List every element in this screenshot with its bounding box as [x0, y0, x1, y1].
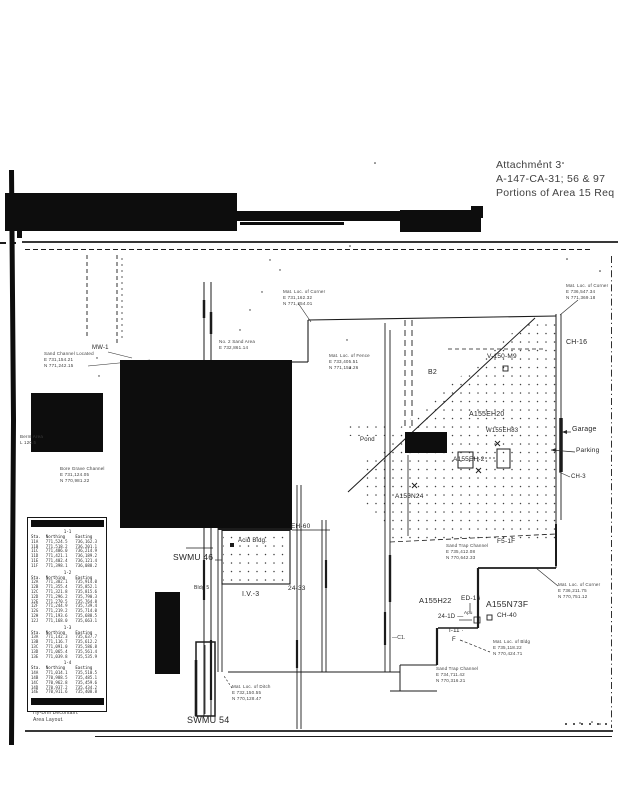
label-a155h22: A155H22 [419, 596, 452, 605]
note-sand-channel: Sand Channel LocatedE 731,154.21N 771,24… [44, 351, 94, 369]
attachment-subject: Portions of Area 15 Req [496, 186, 614, 200]
redaction-top-right [400, 210, 481, 232]
note-ditch: Mat. Loc. of DitchE 732,150.55N 770,128.… [232, 684, 271, 702]
label-eh60: EH-60 [291, 523, 310, 530]
label-w155eh83: W155EH83 [486, 428, 518, 434]
label-a155eh2: A155EH-2 [453, 456, 485, 463]
note-mid-fence: Mat. Loc. of FenceE 733,405.51N 771,153.… [329, 353, 370, 371]
label-ch3: CH-3 [571, 474, 586, 480]
label-apu: Apu [464, 610, 473, 615]
label-acid-bldg: Acid Bldg. [238, 538, 267, 544]
note-right-corner: Mat. Loc. of CornerE 736,211.75N 770,751… [558, 582, 600, 600]
note-bldg-corner: Mat. Loc. of BldgE 735,118.22N 770,424.7… [493, 639, 530, 657]
table-rows: 11A771,524.5736,162.311B771,518.2736,201… [31, 540, 104, 569]
note-sand-trap-top: Sand Trap ChannelE 735,412.08N 770,642.3… [446, 543, 488, 561]
table-section-1: 1-1 Sta.NorthingEasting 11A771,524.5736,… [31, 529, 104, 569]
label-24-33: 24-33 [288, 585, 306, 592]
scanned-site-plan-page: Attachment 3 A-147-CA-31; 56 & 97 Portio… [0, 0, 618, 800]
attachment-title: Attachment 3 [496, 158, 614, 172]
redaction-left-streak [9, 170, 16, 745]
label-swmu46: SWMU 46 [173, 552, 213, 562]
redaction-top-left [5, 193, 237, 231]
redaction-narrow-box [155, 592, 180, 674]
table-top-bar [31, 520, 104, 527]
table-rows: 12A771,382.1735,914.012B771,355.4735,852… [31, 580, 104, 623]
note-berm: Berm AreaL 120.5 [20, 434, 43, 446]
redaction-center-large [120, 360, 292, 528]
label-garage: Garage [572, 426, 597, 433]
label-a155eh20: A155EH20 [469, 411, 504, 418]
label-mw1: MW-1 [92, 345, 109, 351]
attachment-number: A-147-CA-31; 56 & 97 [496, 172, 614, 186]
well-marker-icon [487, 615, 492, 620]
table-section-3: 1-3 Sta.NorthingEasting 13A771,142.3735,… [31, 625, 104, 660]
note-ne-corner: Mat. Loc. of CornerE 736,547.34N 771,369… [566, 283, 608, 301]
table-row: 13E771,039.8735,535.9 [31, 655, 104, 660]
note-sand-trap-bottom: Sand Trap ChannelE 734,711.42N 770,316.2… [436, 666, 478, 684]
label-24-1d: 24-1D — [438, 614, 463, 620]
label-pond: Pond [360, 437, 375, 443]
attachment-header: Attachment 3 A-147-CA-31; 56 & 97 Portio… [496, 158, 614, 200]
table-row: 12J771,168.0735,663.1 [31, 619, 104, 624]
label-parking: Parking [576, 447, 599, 454]
note-sand-area: No. 2 Sand AreaE 732,861.14 [219, 339, 255, 351]
label-a155n73f: A155N73F [486, 599, 528, 609]
note-nw-corner: Mat. Loc. of CornerE 731,162.32N 771,254… [283, 289, 325, 307]
table-section-2: 1-2 Sta.NorthingEasting 12A771,382.1735,… [31, 570, 104, 624]
label-b2: B2 [428, 369, 437, 376]
label-a155n24: A155N24 [395, 493, 424, 500]
label-ch16: CH-16 [566, 339, 587, 346]
table-rows: 13A771,142.3735,637.713B771,116.7735,612… [31, 635, 104, 659]
label-ed16: ED-16 [461, 595, 480, 602]
label-ch40: CH-40 [497, 612, 517, 619]
note-bore-channel: Bore Grave ChannelE 731,124.05N 770,981.… [60, 466, 105, 484]
label-lv3: I.V.-3 [242, 591, 259, 598]
redaction-top-mid-ragged [240, 222, 344, 225]
label-v150m9: V-150-M9 [487, 353, 517, 360]
table-row: 11F771,398.1736,088.2 [31, 564, 104, 569]
table-section-4: 1-4 Sta.NorthingEasting 14A771,014.1735,… [31, 660, 104, 695]
redaction-small-square [471, 206, 483, 218]
label-i11: I-11 · [449, 628, 464, 634]
table-rows: 14A771,014.1735,510.514B770,988.5735,485… [31, 671, 104, 695]
label-f51f: F5-1F [497, 538, 515, 545]
table-bottom-bar [31, 698, 104, 705]
label-f: F [452, 637, 456, 643]
sample-point-icon [230, 543, 234, 547]
redaction-top-mid [237, 211, 403, 221]
label-bldg5: Bldg 5 [194, 585, 209, 591]
coordinate-table: 1-1 Sta.NorthingEasting 11A771,524.5736,… [27, 517, 107, 712]
label-swmu54: SWMU 54 [187, 715, 229, 725]
table-row: 14E770,911.6735,408.8 [31, 690, 104, 695]
label-c1: —C1. [392, 635, 406, 641]
redaction-pond-box [405, 432, 447, 453]
